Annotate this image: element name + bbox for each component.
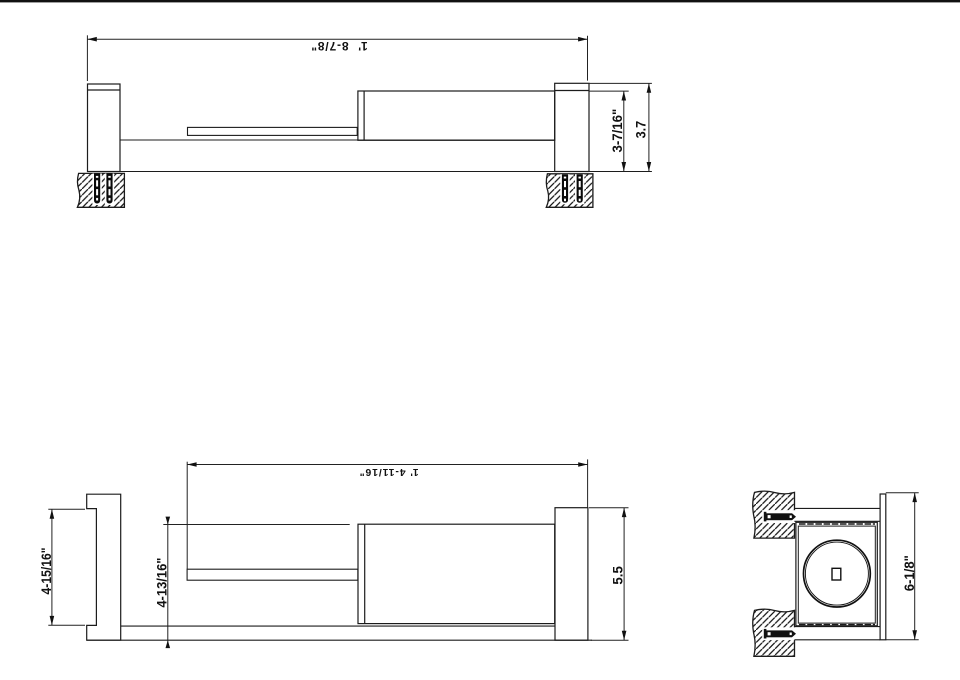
svg-text:4-11/16": 4-11/16" xyxy=(359,466,406,477)
svg-text:1': 1' xyxy=(358,39,368,53)
svg-text:1': 1' xyxy=(410,466,418,477)
svg-text:4-15/16": 4-15/16" xyxy=(38,548,54,595)
svg-text:5.5: 5.5 xyxy=(610,566,625,585)
svg-text:8-7/8": 8-7/8" xyxy=(310,39,348,53)
svg-text:3-7/16": 3-7/16" xyxy=(610,109,625,153)
svg-text:3.7: 3.7 xyxy=(633,121,649,139)
svg-text:4-13/16": 4-13/16" xyxy=(154,558,169,608)
svg-text:6-1/8": 6-1/8" xyxy=(902,555,917,591)
